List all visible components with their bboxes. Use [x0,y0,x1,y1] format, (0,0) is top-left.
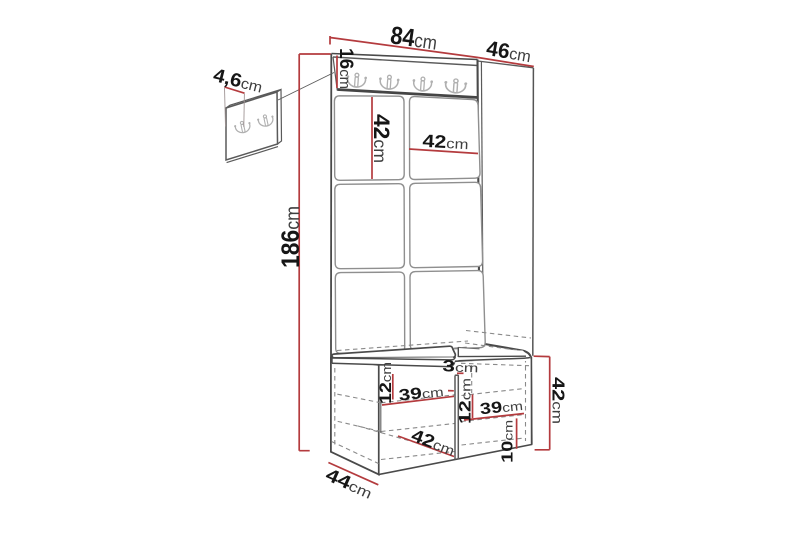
svg-text:10cm: 10cm [499,420,516,463]
svg-text:84cm: 84cm [389,21,439,55]
svg-text:186cm: 186cm [277,206,305,268]
svg-text:12cm: 12cm [455,378,474,424]
svg-text:16cm: 16cm [335,48,357,89]
svg-text:42cm: 42cm [369,114,394,163]
svg-text:12cm: 12cm [377,362,395,404]
svg-text:4,6cm: 4,6cm [211,65,265,97]
svg-text:42cm: 42cm [549,377,569,424]
svg-text:3cm: 3cm [442,358,479,376]
